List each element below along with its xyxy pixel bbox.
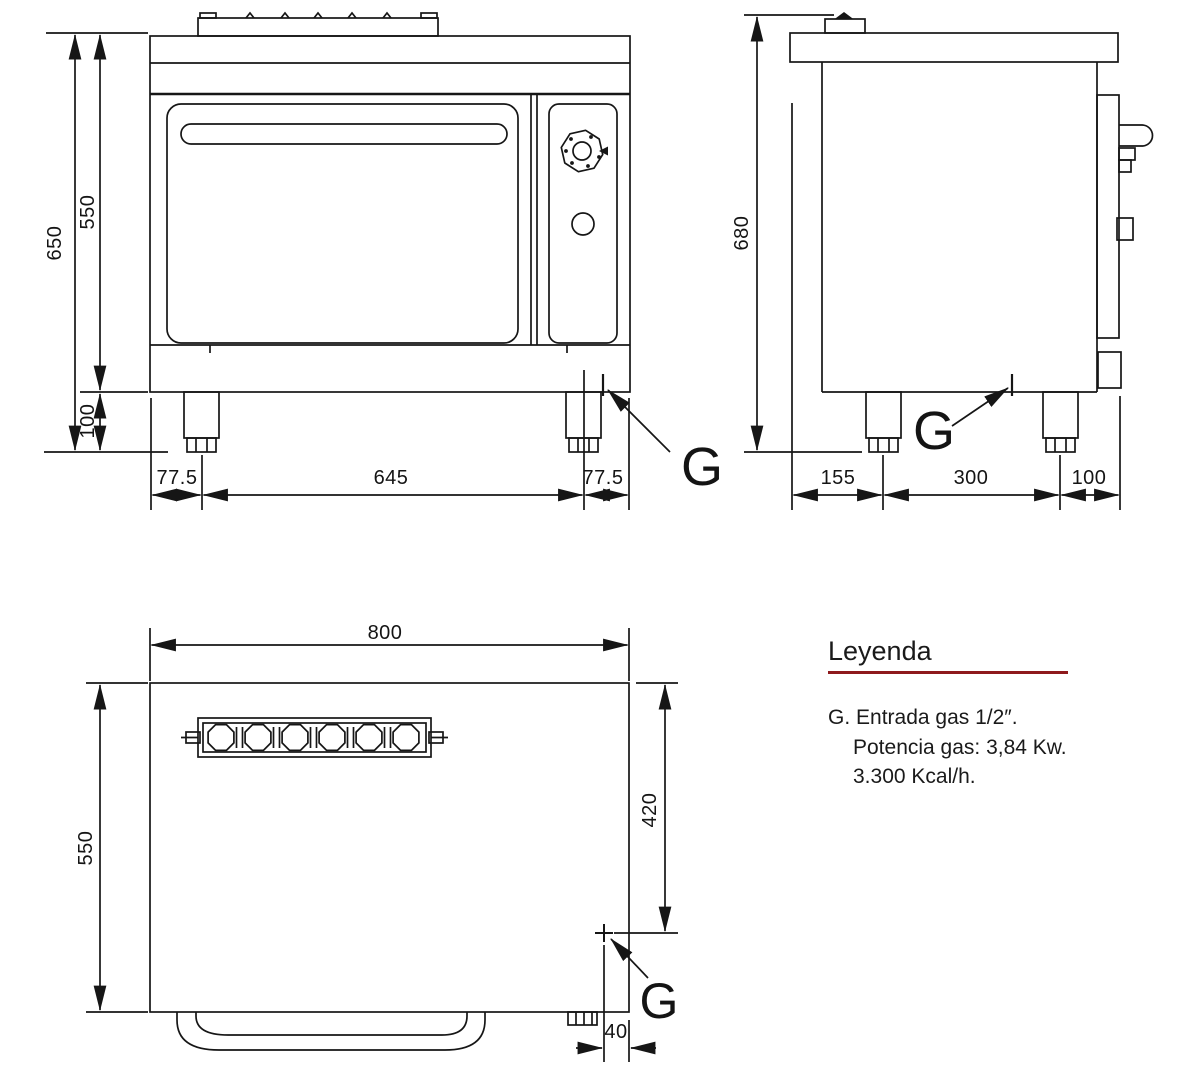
dim-label-77-5: 77.5 <box>583 468 624 488</box>
dim-label-800: 800 <box>368 623 403 643</box>
dim-label-155: 155 <box>821 468 856 488</box>
dim-label-100: 100 <box>1072 468 1107 488</box>
legend-entry-potencia: Potencia gas: 3,84 Kw. <box>853 736 1067 760</box>
dim-label-650: 650 <box>45 226 65 261</box>
legend-underline <box>828 671 1068 674</box>
side-view-linework <box>744 13 1153 452</box>
oven-door <box>167 104 518 343</box>
front-view-linework <box>150 13 630 452</box>
control-panel <box>549 104 617 343</box>
door-handle-plan <box>177 1012 485 1050</box>
plan-view-dimensions <box>86 628 678 1062</box>
igniter-button <box>572 213 594 235</box>
dim-label-645: 645 <box>374 468 409 488</box>
dim-label-300: 300 <box>954 468 989 488</box>
technical-drawing-sheet: 650 550 100 77.5 645 77.5 G 680 155 300 … <box>0 0 1200 1080</box>
gas-inlet-mark <box>595 924 613 942</box>
drawing-linework <box>0 0 1200 1080</box>
gas-leader-arrow <box>608 390 670 452</box>
legend-entry-kcal: 3.300 Kcal/h. <box>853 765 976 789</box>
dim-label-100: 100 <box>78 404 98 439</box>
dim-label-77-5: 77.5 <box>157 468 198 488</box>
dim-label-40: 40 <box>604 1022 627 1042</box>
gas-point-label: G <box>913 404 955 458</box>
door-handle-profile <box>1119 125 1153 146</box>
gas-point-label: G <box>640 976 679 1026</box>
dim-label-680: 680 <box>732 216 752 251</box>
legend-entry-gas: G. Entrada gas 1/2″. <box>828 706 1018 730</box>
door-handle <box>181 124 507 144</box>
dim-label-550: 550 <box>76 831 96 866</box>
legend-title: Leyenda <box>828 636 932 667</box>
plan-view-linework <box>150 683 629 1050</box>
dim-label-550: 550 <box>78 195 98 230</box>
gas-point-label: G <box>681 440 723 494</box>
dim-label-420: 420 <box>640 793 660 828</box>
gas-leader-arrow <box>952 388 1008 426</box>
